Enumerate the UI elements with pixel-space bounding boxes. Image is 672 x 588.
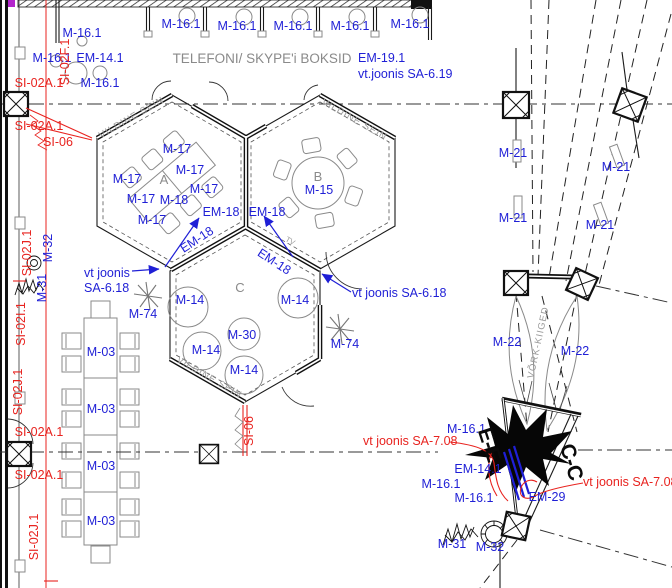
label-si02a: SI-02A.1	[15, 119, 64, 133]
label-m03: M-03	[87, 345, 116, 359]
note-sa618-line2: SA-6.18	[84, 281, 129, 295]
light-fixtures	[513, 140, 625, 226]
label-m03: M-03	[87, 459, 116, 473]
booths-title: TELEFONI/ SKYPE'i BOKSID	[173, 51, 352, 66]
label-m21: M-21	[499, 211, 528, 225]
hexagon-rooms	[97, 81, 395, 406]
note-sa708: vt joonis SA-7.08	[583, 475, 672, 489]
column-symbol	[4, 92, 28, 116]
column-symbol	[200, 445, 219, 464]
room-letter-c: C	[235, 280, 244, 295]
label-m21: M-21	[499, 146, 528, 160]
top-wall	[7, 0, 432, 9]
long-table-chairs-left	[62, 333, 81, 537]
label-m30: M-30	[228, 328, 257, 342]
label-em14: EM-14.1	[454, 462, 501, 476]
label-m31: M-31	[438, 537, 467, 551]
room-letter-a: A	[160, 172, 169, 187]
label-m17: M-17	[113, 172, 142, 186]
label-m16-booth: M-16.1	[274, 19, 313, 33]
label-m16: M-16.1	[63, 26, 102, 40]
note-sa618-line1: vt joonis	[84, 266, 130, 280]
section-mark-cc: C-C	[555, 441, 587, 483]
label-m74: M-74	[129, 307, 158, 321]
corner-lines	[480, 530, 672, 588]
label-m16-booth: M-16.1	[218, 19, 257, 33]
label-m14: M-14	[230, 363, 259, 377]
note-sa708: vt joonis SA-7.08	[363, 434, 458, 448]
wall-label-felt: VILDINE SEIN	[97, 95, 166, 141]
label-m22: M-22	[561, 344, 590, 358]
label-m17: M-17	[190, 182, 219, 196]
column-symbol	[503, 92, 529, 118]
label-m22: M-22	[493, 335, 522, 349]
label-em29: EM-29	[529, 490, 566, 504]
grid-lines	[0, 0, 672, 303]
label-m21: M-21	[602, 160, 631, 174]
label-si02j: SI-02J.1	[20, 230, 34, 277]
note-sa618: vt joonis SA-6.18	[352, 286, 447, 300]
label-m16-booth: M-16.1	[162, 17, 201, 31]
label-m32: M-32	[476, 540, 505, 554]
label-si06-vertical: SI-06	[242, 416, 256, 446]
label-em18: EM-18	[203, 205, 240, 219]
label-m15: M-15	[305, 183, 334, 197]
label-m18: M-18	[160, 193, 189, 207]
label-m32: M-32	[41, 234, 55, 263]
note-sa619: vt.joonis SA-6.19	[358, 67, 453, 81]
wall-label-felt: VILDINE SEIN	[175, 355, 244, 401]
column-symbol	[504, 271, 528, 295]
label-m17: M-17	[127, 192, 156, 206]
plant-star-left	[134, 282, 162, 310]
label-m14: M-14	[176, 293, 205, 307]
label-m17: M-17	[176, 163, 205, 177]
column-symbol	[613, 88, 646, 121]
label-si02a: SI-02A.1	[15, 468, 64, 482]
floor-plan-canvas: M-16.1 M-16.1 EM-14.1 M-16.1 SI-02F.1 SI…	[0, 0, 672, 588]
label-em18: EM-18	[249, 205, 286, 219]
room-letter-b: B	[314, 169, 323, 184]
label-m31: M-31	[35, 274, 49, 303]
label-em14: EM-14.1	[76, 51, 123, 65]
label-m17: M-17	[163, 142, 192, 156]
label-si06: SI-06	[43, 135, 73, 149]
label-m17: M-17	[138, 213, 167, 227]
label-tv: TV	[284, 235, 297, 248]
label-m03: M-03	[87, 514, 116, 528]
label-m74: M-74	[331, 337, 360, 351]
corner-mark	[7, 0, 15, 7]
label-si02a: SI-02A.1	[15, 76, 64, 90]
label-m16: M-16.1	[455, 491, 494, 505]
label-si02a: SI-02A.1	[15, 425, 64, 439]
column-symbol	[566, 268, 598, 300]
label-em19: EM-19.1	[358, 51, 405, 65]
label-m21: M-21	[586, 218, 615, 232]
label-si02j: SI-02J.1	[11, 369, 25, 416]
floor-plan-screenshot: M-16.1 M-16.1 EM-14.1 M-16.1 SI-02F.1 SI…	[0, 0, 672, 588]
label-si02i: SI-02I.1	[14, 302, 28, 346]
label-m16-booth: M-16.1	[391, 17, 430, 31]
label-si02j: SI-02J.1	[27, 514, 41, 561]
column-symbol	[7, 442, 31, 466]
label-m14: M-14	[281, 293, 310, 307]
column-symbol	[502, 512, 530, 540]
long-table-chairs-right	[120, 333, 139, 537]
label-m16-booth: M-16.1	[331, 19, 370, 33]
label-m16: M-16.1	[81, 76, 120, 90]
label-m03: M-03	[87, 402, 116, 416]
label-m16: M-16.1	[422, 477, 461, 491]
label-em18: EM-18	[178, 224, 217, 256]
label-m14: M-14	[192, 343, 221, 357]
